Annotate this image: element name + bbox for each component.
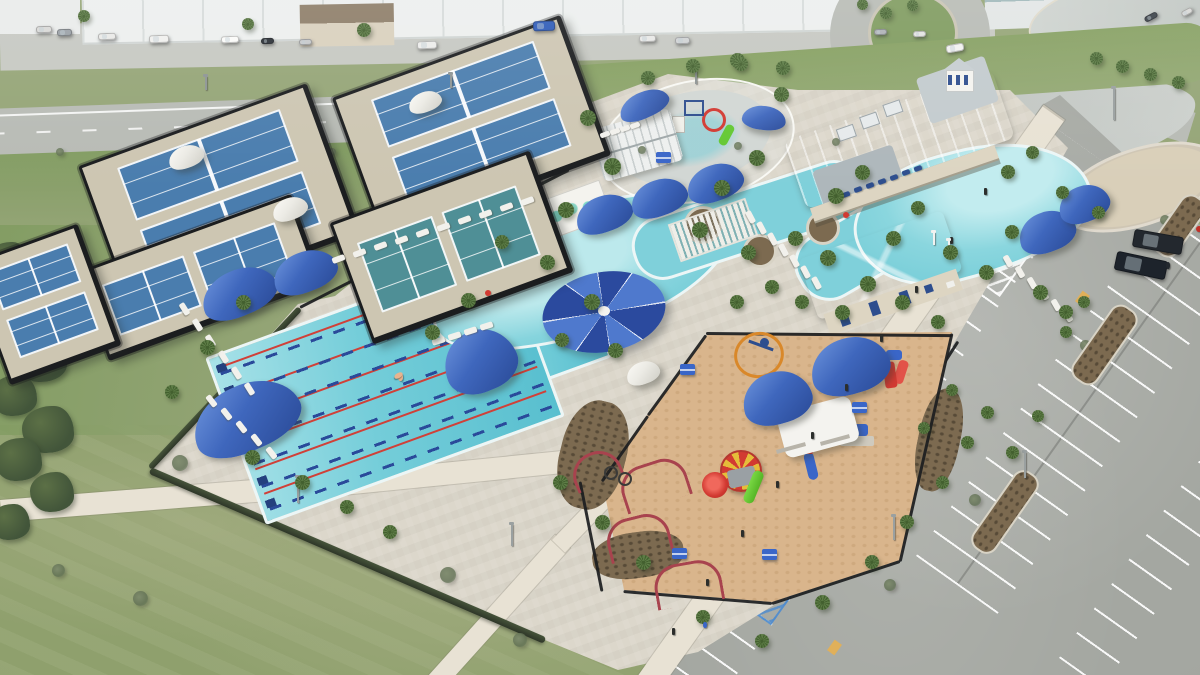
palm-tree <box>165 385 179 399</box>
palm-tree <box>1005 225 1019 239</box>
light-pole-head <box>203 74 208 77</box>
palm-tree <box>692 222 708 238</box>
bollard <box>672 628 675 635</box>
palm-tree <box>495 235 509 249</box>
aerial-photo-scene <box>0 0 1200 675</box>
palm-tree <box>200 340 215 355</box>
tree <box>638 146 646 154</box>
tree <box>133 591 148 606</box>
light-pole <box>933 232 935 245</box>
palm-tree <box>383 525 397 539</box>
tire-swing-1 <box>604 466 618 480</box>
safety-ring <box>1196 226 1200 232</box>
bollard <box>706 579 709 586</box>
palm-tree <box>245 450 260 465</box>
pine-tree <box>0 438 42 481</box>
palm-tree <box>357 23 371 37</box>
tree <box>172 455 188 471</box>
palm-tree <box>730 295 744 309</box>
light-pole-head <box>1022 450 1027 453</box>
tire-swing-2 <box>618 472 632 486</box>
safety-ring <box>843 212 849 218</box>
palm-tree <box>755 634 769 648</box>
palm-tree <box>979 265 994 280</box>
palm-tree <box>788 231 803 246</box>
spiral-slide <box>702 472 728 498</box>
bollard <box>880 335 883 342</box>
bollard <box>984 188 987 195</box>
tree <box>884 579 896 591</box>
palm-tree <box>1090 52 1103 65</box>
picnic-table <box>672 548 687 559</box>
tree <box>52 564 65 577</box>
palm-tree <box>242 18 254 30</box>
picnic-table <box>762 549 777 560</box>
light-pole <box>450 74 452 88</box>
light-pole <box>205 76 207 90</box>
tree <box>832 138 840 146</box>
palm-tree <box>931 315 945 329</box>
palm-tree <box>558 202 574 218</box>
palm-tree <box>961 436 974 449</box>
palm-tree <box>78 10 90 22</box>
palm-tree <box>540 255 555 270</box>
palm-tree <box>584 294 600 310</box>
bollard <box>915 286 918 293</box>
tree <box>513 633 527 647</box>
palm-tree <box>886 231 901 246</box>
bollard <box>776 481 779 488</box>
palm-tree <box>946 384 958 396</box>
light-pole-head <box>931 230 936 233</box>
bollard <box>741 530 744 537</box>
pine-tree <box>30 472 74 512</box>
palm-tree <box>595 515 610 530</box>
car <box>417 41 437 50</box>
car <box>299 39 312 45</box>
palm-tree <box>425 325 440 340</box>
palm-tree <box>236 295 251 310</box>
light-pole <box>511 524 513 546</box>
car <box>913 31 926 38</box>
palm-tree <box>911 201 925 215</box>
palm-tree <box>828 188 844 204</box>
palm-tree <box>900 515 914 529</box>
palm-tree <box>855 165 870 180</box>
light-pole <box>1024 452 1026 478</box>
car <box>98 33 116 41</box>
light-pole-head <box>946 238 951 241</box>
person <box>703 622 707 628</box>
palm-tree <box>580 110 596 126</box>
palm-tree <box>714 180 730 196</box>
palm-tree <box>1056 186 1069 199</box>
umbrella-center-cap <box>598 306 610 316</box>
palm-tree <box>1059 305 1073 319</box>
sport-court <box>102 255 202 335</box>
palm-tree <box>815 595 830 610</box>
palm-tree <box>776 61 790 75</box>
palm-tree <box>835 305 850 320</box>
palm-tree <box>749 150 765 166</box>
palm-tree <box>741 245 756 260</box>
picnic-table <box>680 364 695 375</box>
palm-tree <box>1033 285 1048 300</box>
palm-tree <box>1092 206 1105 219</box>
palm-tree <box>765 280 779 294</box>
car <box>533 21 555 32</box>
palm-tree <box>943 245 958 260</box>
palm-tree <box>1172 76 1185 89</box>
car <box>639 35 656 43</box>
palm-tree <box>340 500 354 514</box>
light-pole <box>1113 88 1115 120</box>
palm-tree <box>555 333 569 347</box>
palm-tree <box>907 0 918 11</box>
car <box>57 29 72 37</box>
climber-hub <box>760 338 769 347</box>
palm-tree <box>686 59 700 73</box>
palm-tree <box>1078 296 1090 308</box>
palm-tree <box>1144 68 1157 81</box>
palm-tree <box>1001 165 1015 179</box>
light-pole-head <box>509 522 514 525</box>
palm-tree <box>641 71 655 85</box>
palm-tree <box>895 295 910 310</box>
palm-tree <box>820 250 836 266</box>
car <box>149 35 169 44</box>
tree <box>56 148 64 156</box>
palm-tree <box>774 87 789 102</box>
tree <box>440 567 456 583</box>
light-pole-head <box>891 514 896 517</box>
person <box>1166 262 1170 269</box>
palm-tree <box>734 57 748 71</box>
palm-tree <box>865 555 879 569</box>
palm-tree <box>1026 146 1039 159</box>
palm-tree <box>295 475 310 490</box>
palm-tree <box>880 7 892 19</box>
palm-tree <box>608 343 623 358</box>
tree <box>969 494 981 506</box>
palm-tree <box>860 276 876 292</box>
palm-tree <box>1006 446 1019 459</box>
palm-tree <box>1060 326 1072 338</box>
cupola <box>946 70 974 92</box>
palm-tree <box>461 293 476 308</box>
car <box>675 37 690 45</box>
palm-tree <box>1116 60 1129 73</box>
palm-tree <box>604 158 621 175</box>
palm-tree <box>553 475 568 490</box>
tree <box>734 142 742 150</box>
palm-tree <box>918 422 930 434</box>
bollard <box>845 384 848 391</box>
car <box>221 36 239 44</box>
car <box>261 38 274 44</box>
car <box>36 26 52 34</box>
splash-red-slide <box>702 108 726 132</box>
palm-tree <box>795 295 809 309</box>
light-pole-head <box>1111 86 1116 89</box>
palm-tree <box>857 0 868 10</box>
palm-tree <box>636 555 651 570</box>
palm-tree <box>981 406 994 419</box>
light-pole <box>893 516 895 540</box>
safety-ring <box>485 290 491 296</box>
car <box>874 29 887 36</box>
palm-tree <box>936 476 949 489</box>
pine-tree <box>0 504 30 540</box>
picnic-table <box>656 152 671 163</box>
picnic-table <box>852 402 867 413</box>
light-pole-head <box>448 72 453 75</box>
storefront-building <box>300 3 395 47</box>
splash-play-frame <box>684 100 704 116</box>
palm-tree <box>1032 410 1044 422</box>
bollard <box>811 432 814 439</box>
